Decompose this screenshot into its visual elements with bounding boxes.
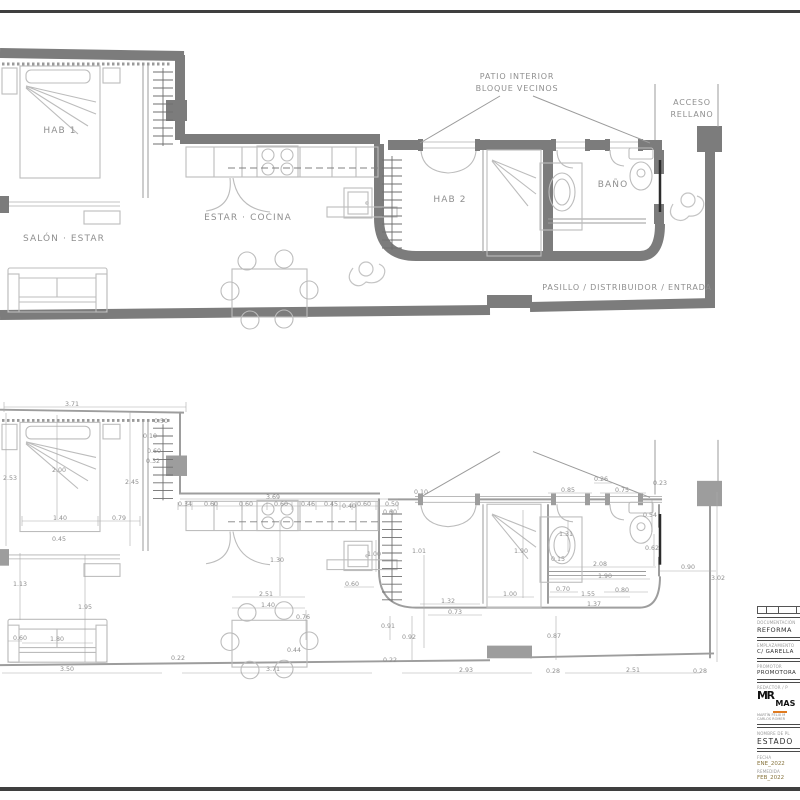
dimension-label: 0.87 <box>547 633 561 640</box>
dimension-label: 0.91 <box>381 623 395 630</box>
dimension-labels: 3.712.532.002.450.500.100.600.321.400.79… <box>3 401 725 675</box>
dimension-label: 0.26 <box>594 476 608 483</box>
dimension-label: 0.92 <box>402 634 416 641</box>
dimension-label: 0.80 <box>615 587 629 594</box>
room-label-hab2: HAB 2 <box>433 195 466 205</box>
dimension-label: 0.32 <box>146 458 160 465</box>
floor-plan-drawing: HAB 1 SALÓN · ESTAR ESTAR · COCINA HAB 2… <box>0 0 800 800</box>
dimension-label: 0.45 <box>52 536 66 543</box>
dimension-label: 1.95 <box>78 604 92 611</box>
titleblock-row-fecha: FECHA ENE_2022 REMEDIDA FEB_2022 <box>757 755 800 781</box>
dimension-label: 0.45 <box>324 501 338 508</box>
titleblock-row-promotor: PROMOTOR PROMOTORA <box>757 664 800 676</box>
dimension-label: 1.32 <box>441 598 455 605</box>
scale-bar <box>757 606 800 614</box>
annotation-patio-line2: BLOQUE VECINOS <box>476 84 559 93</box>
dimension-label: 0.22 <box>383 657 397 664</box>
architect-logo: MR MAS <box>757 691 800 713</box>
dimension-label: 0.50 <box>385 501 399 508</box>
documentacion-label: DOCUMENTACIÓN <box>757 620 800 625</box>
annotation-acceso-line2: RELLANO <box>670 110 713 119</box>
bottom-plan-drawing <box>0 410 722 679</box>
dimension-label: 0.76 <box>296 614 310 621</box>
dimension-label: 2.93 <box>459 667 473 674</box>
dimension-label: 1.90 <box>598 573 612 580</box>
dimension-label: 3.02 <box>711 575 725 582</box>
fecha-value: ENE_2022 <box>757 761 800 767</box>
plano-value: ESTADO <box>757 737 800 746</box>
dimension-label: 1.30 <box>270 557 284 564</box>
dimension-label: 0.22 <box>171 655 185 662</box>
dimension-label: 0.50 <box>154 418 168 425</box>
dimension-label: 1.37 <box>587 601 601 608</box>
dimension-label: 0.60 <box>204 501 218 508</box>
dimension-label: 0.75 <box>615 487 629 494</box>
dimension-label: 2.51 <box>259 591 273 598</box>
dimension-label: 0.28 <box>546 668 560 675</box>
titleblock-row-emplazamiento: EMPLAZAMIENTO C/ GARELLA <box>757 643 800 655</box>
dimension-label: 0.54 <box>643 512 657 519</box>
annotation-patio-line1: PATIO INTERIOR <box>480 72 555 81</box>
dimension-label: 2.00 <box>52 467 66 474</box>
dimension-label: 0.10 <box>414 489 428 496</box>
room-label-pasillo: PASILLO / DISTRIBUIDOR / ENTRADA <box>542 283 712 292</box>
dimension-label: 0.10 <box>143 433 157 440</box>
dimension-label: 0.46 <box>301 501 315 508</box>
logo-mas-block: MAS <box>773 691 795 713</box>
dimension-label: 0.34 <box>178 501 192 508</box>
promotor-label: PROMOTOR <box>757 664 800 669</box>
dimension-label: 1.31 <box>559 531 573 538</box>
dimension-label: 3.50 <box>60 666 74 673</box>
dimension-label: 1.40 <box>261 602 275 609</box>
room-label-hab1: HAB 1 <box>43 126 76 136</box>
dimension-label: 0.70 <box>556 586 570 593</box>
annotation-acceso-line1: ACCESO <box>673 98 711 107</box>
dimension-label: 0.85 <box>561 487 575 494</box>
dimension-lines <box>2 402 717 673</box>
room-label-salon: SALÓN · ESTAR <box>23 232 105 244</box>
titleblock-row-documentacion: DOCUMENTACIÓN REFORMA <box>757 620 800 634</box>
logo-mr-mark: MR <box>757 691 773 701</box>
dimension-label: 2.45 <box>125 479 139 486</box>
dimension-label: 3.71 <box>266 666 280 673</box>
logo-mas-text: MAS <box>775 699 795 708</box>
dimension-label: 2.08 <box>593 561 607 568</box>
dimension-label: 1.90 <box>514 548 528 555</box>
room-label-bano: BAÑO <box>598 179 629 190</box>
dimension-label: 1.55 <box>581 591 595 598</box>
architect-name-2: CARLOS ROMER <box>757 717 800 722</box>
dimension-label: 2.51 <box>626 667 640 674</box>
dimension-label: 2.53 <box>3 475 17 482</box>
room-label-cocina: ESTAR · COCINA <box>204 213 292 223</box>
dimension-label: 1.01 <box>412 548 426 555</box>
dimension-label: 0.73 <box>448 609 462 616</box>
dimension-label: 0.90 <box>681 564 695 571</box>
remedida-value: FEB_2022 <box>757 775 800 781</box>
dimension-label: 1.80 <box>50 636 64 643</box>
dimension-label: 1.00 <box>503 591 517 598</box>
remedida-label: REMEDIDA <box>757 769 800 774</box>
dimension-label: 0.60 <box>357 501 371 508</box>
dimension-label: 0.60 <box>383 509 397 516</box>
dimension-label: 3.69 <box>266 494 280 501</box>
emplazamiento-label: EMPLAZAMIENTO <box>757 643 800 648</box>
dimension-label: 0.60 <box>13 635 27 642</box>
dimension-label: 0.60 <box>147 448 161 455</box>
titleblock-row-plano: NOMBRE DE PL ESTADO <box>757 731 800 746</box>
dimension-label: 3.71 <box>65 401 79 408</box>
documentacion-value: REFORMA <box>757 626 800 634</box>
fecha-label: FECHA <box>757 755 800 760</box>
titleblock-row-redactor: REDACTOR / P MR MAS MARTÍN FÉLIX M CARLO… <box>757 685 800 722</box>
dimension-label: 0.62 <box>645 545 659 552</box>
emplazamiento-value: C/ GARELLA <box>757 649 800 655</box>
dimension-label: 1.00 <box>367 551 381 558</box>
dimension-label: 0.60 <box>345 581 359 588</box>
dimension-label: 1.40 <box>53 515 67 522</box>
dimension-label: 0.60 <box>274 501 288 508</box>
dimension-label: 0.28 <box>693 668 707 675</box>
dimension-label: 0.79 <box>112 515 126 522</box>
dimension-label: 0.40 <box>342 503 356 510</box>
promotor-value: PROMOTORA <box>757 670 800 676</box>
drawing-sheet: HAB 1 SALÓN · ESTAR ESTAR · COCINA HAB 2… <box>0 0 800 800</box>
person-figures <box>349 193 704 286</box>
plano-label: NOMBRE DE PL <box>757 731 800 736</box>
dimension-label: 0.44 <box>287 647 301 654</box>
dimension-label: 1.13 <box>13 581 27 588</box>
dimension-label: 0.60 <box>239 501 253 508</box>
dimension-label: 0.23 <box>653 480 667 487</box>
dimension-label: 0.15 <box>551 556 565 563</box>
title-block: DOCUMENTACIÓN REFORMA EMPLAZAMIENTO C/ G… <box>757 606 800 781</box>
